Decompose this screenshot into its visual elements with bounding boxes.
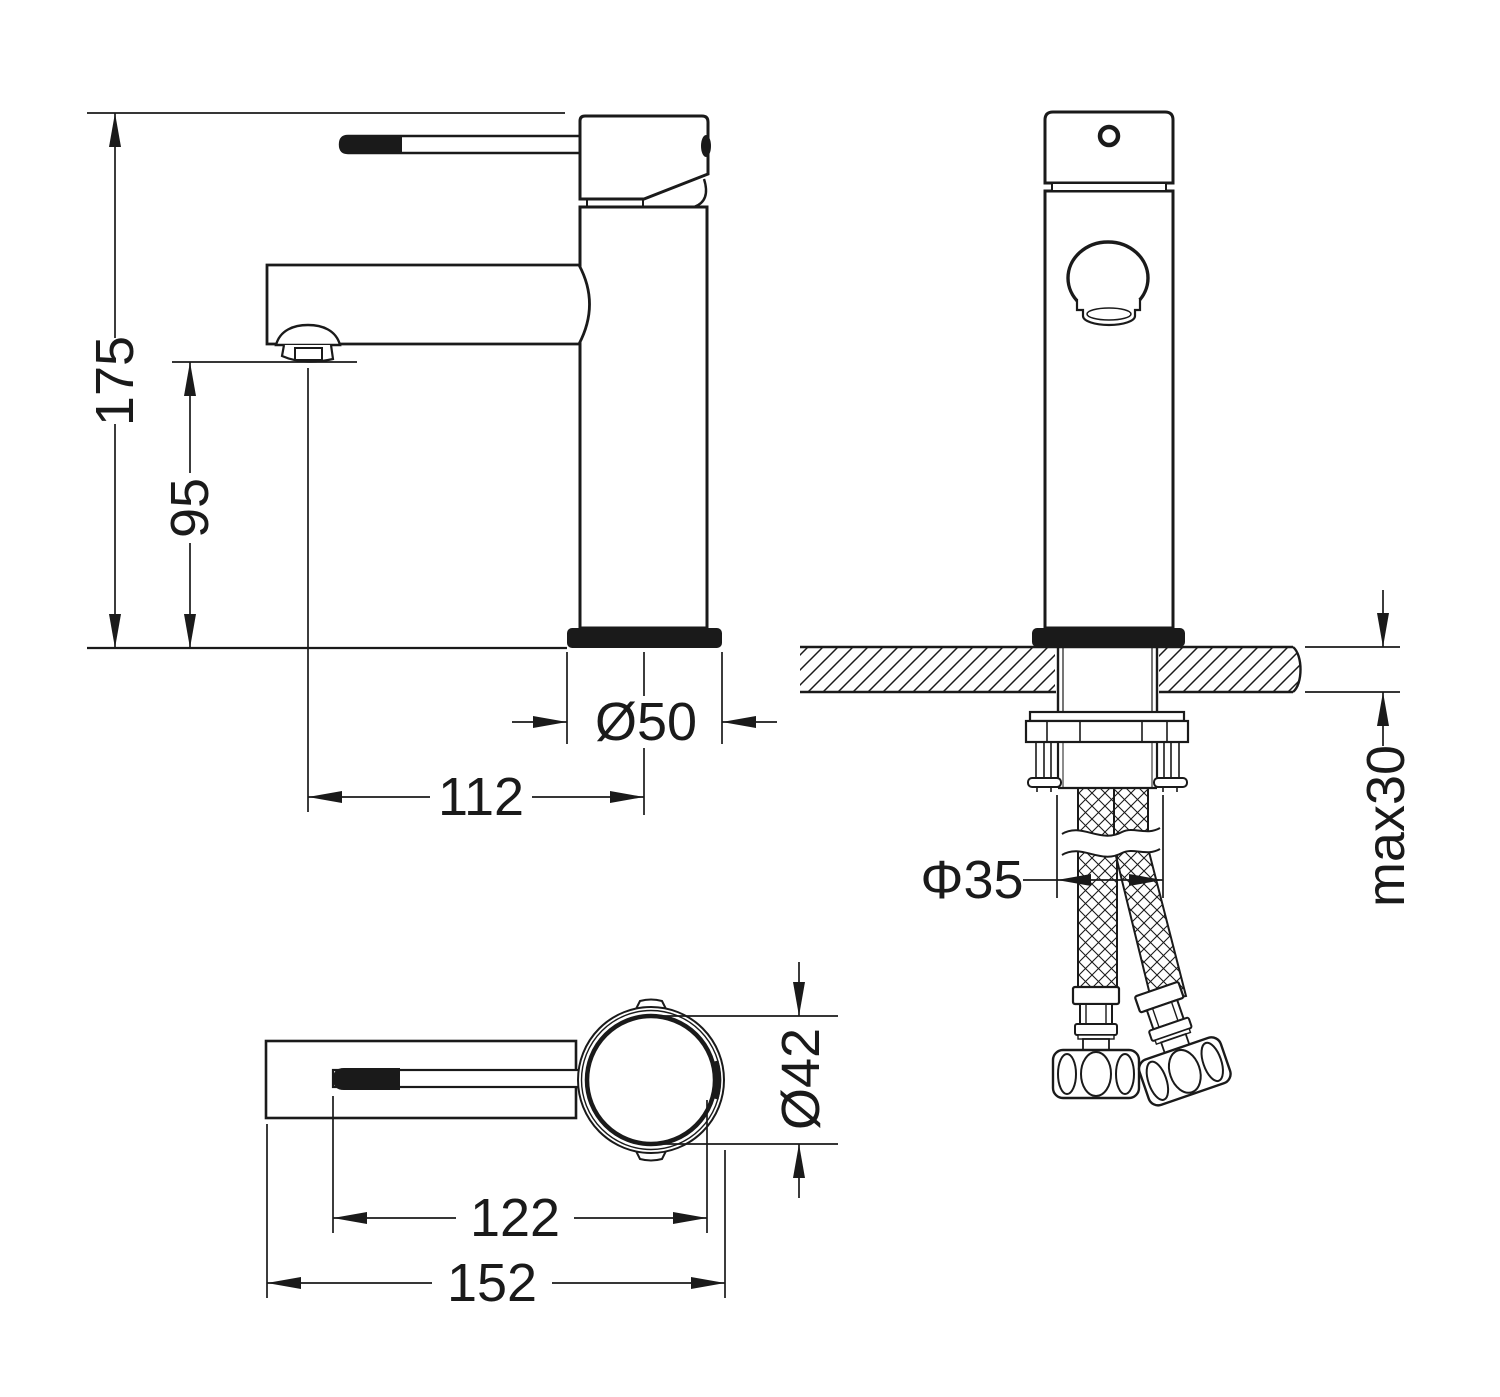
base-ring-side <box>567 628 722 648</box>
mounting-washer <box>1030 712 1184 721</box>
aerator-outlet-side <box>295 348 322 360</box>
dim-label-o50: Ø50 <box>595 692 697 752</box>
handle-cap-front <box>1045 112 1173 183</box>
cap-dot-front <box>1100 127 1118 145</box>
dim-label-112: 112 <box>438 767 524 827</box>
dim-label-175: 175 <box>85 336 145 426</box>
hose-left-lower <box>1078 848 1117 988</box>
body-circle-top-view <box>587 1016 715 1144</box>
dim-label-152: 152 <box>447 1253 537 1313</box>
countertop-hatch-left <box>800 647 1055 692</box>
mounting-nut <box>1026 721 1188 742</box>
dim-label-122: 122 <box>470 1188 560 1248</box>
body-side-tick <box>716 1061 719 1099</box>
dim-label-max30: max30 <box>1356 745 1416 907</box>
faucet-body-side <box>580 207 707 628</box>
stud-cap-right <box>1154 778 1187 787</box>
dim-label-phi35: Φ35 <box>920 850 1023 910</box>
countertop-hatch-right <box>1159 647 1301 692</box>
base-ring-front <box>1032 628 1185 647</box>
dim-label-95: 95 <box>160 478 220 538</box>
drawing-sheet: 175 95 Ø50 112 <box>0 0 1500 1397</box>
hose-right-upper <box>1114 788 1148 836</box>
dim-label-o42: Ø42 <box>771 1028 831 1130</box>
hose-left-upper <box>1078 788 1114 836</box>
technical-drawing-canvas: 175 95 Ø50 112 <box>0 0 1500 1397</box>
background <box>0 0 1500 1397</box>
lever-grip-top-view <box>333 1068 400 1090</box>
lever-grip-side <box>340 136 402 153</box>
handle-pivot-dot <box>701 135 711 157</box>
stud-cap-left <box>1028 778 1061 787</box>
neck-front <box>1052 183 1166 191</box>
